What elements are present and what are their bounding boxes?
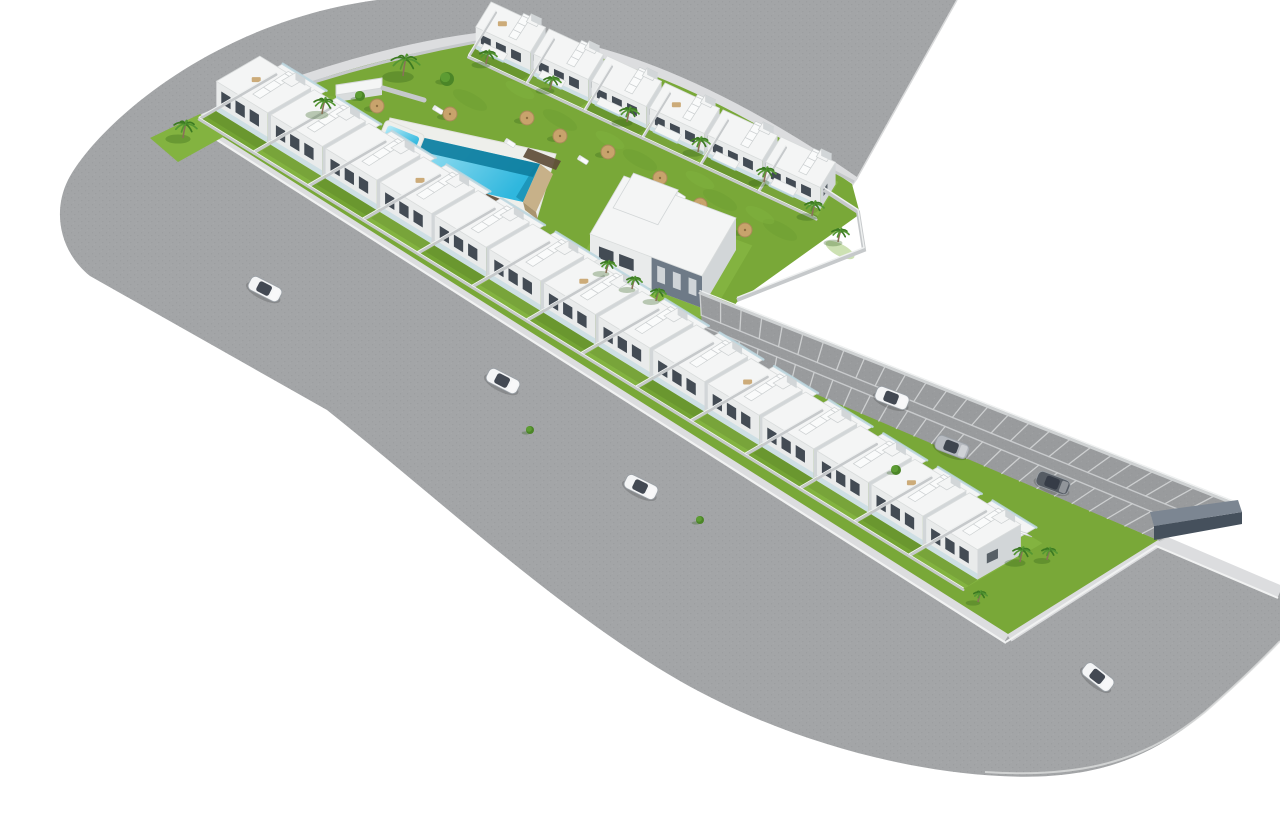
roof-furniture [743, 379, 752, 384]
roof-furniture [579, 279, 588, 284]
window-slit [673, 271, 681, 290]
roof-furniture [672, 102, 681, 107]
roof-furniture [252, 77, 261, 82]
tree-highlight [355, 91, 362, 98]
palm-shadow [472, 62, 491, 69]
parasol-pole [449, 113, 451, 115]
parasol-pole [526, 117, 528, 119]
roof-furniture [907, 480, 916, 485]
parasol-pole [559, 135, 561, 137]
palm-shadow [536, 88, 555, 95]
window-slit [689, 277, 697, 296]
palm-shadow [683, 149, 704, 157]
roof-furniture [416, 178, 425, 183]
palm-shadow [1005, 559, 1026, 567]
palm-shadow [305, 111, 328, 119]
parasol-pole [376, 105, 378, 107]
parasol-pole [744, 229, 746, 231]
aerial-render-scene [0, 0, 1280, 820]
palm-shadow [612, 119, 633, 127]
tree-highlight [891, 465, 898, 472]
palm-shadow [797, 213, 818, 221]
parasol-pole [659, 177, 661, 179]
palm-shadow [165, 134, 190, 143]
tree-highlight [526, 426, 532, 432]
palm-shadow [824, 240, 843, 247]
window-slit [657, 266, 665, 285]
tree-highlight [696, 516, 702, 522]
palm-shadow [749, 179, 770, 187]
palm-shadow [382, 71, 414, 82]
parasol-pole [607, 151, 609, 153]
tree-highlight [440, 72, 450, 82]
property-render-image [0, 0, 1280, 820]
roof-furniture [498, 21, 507, 26]
